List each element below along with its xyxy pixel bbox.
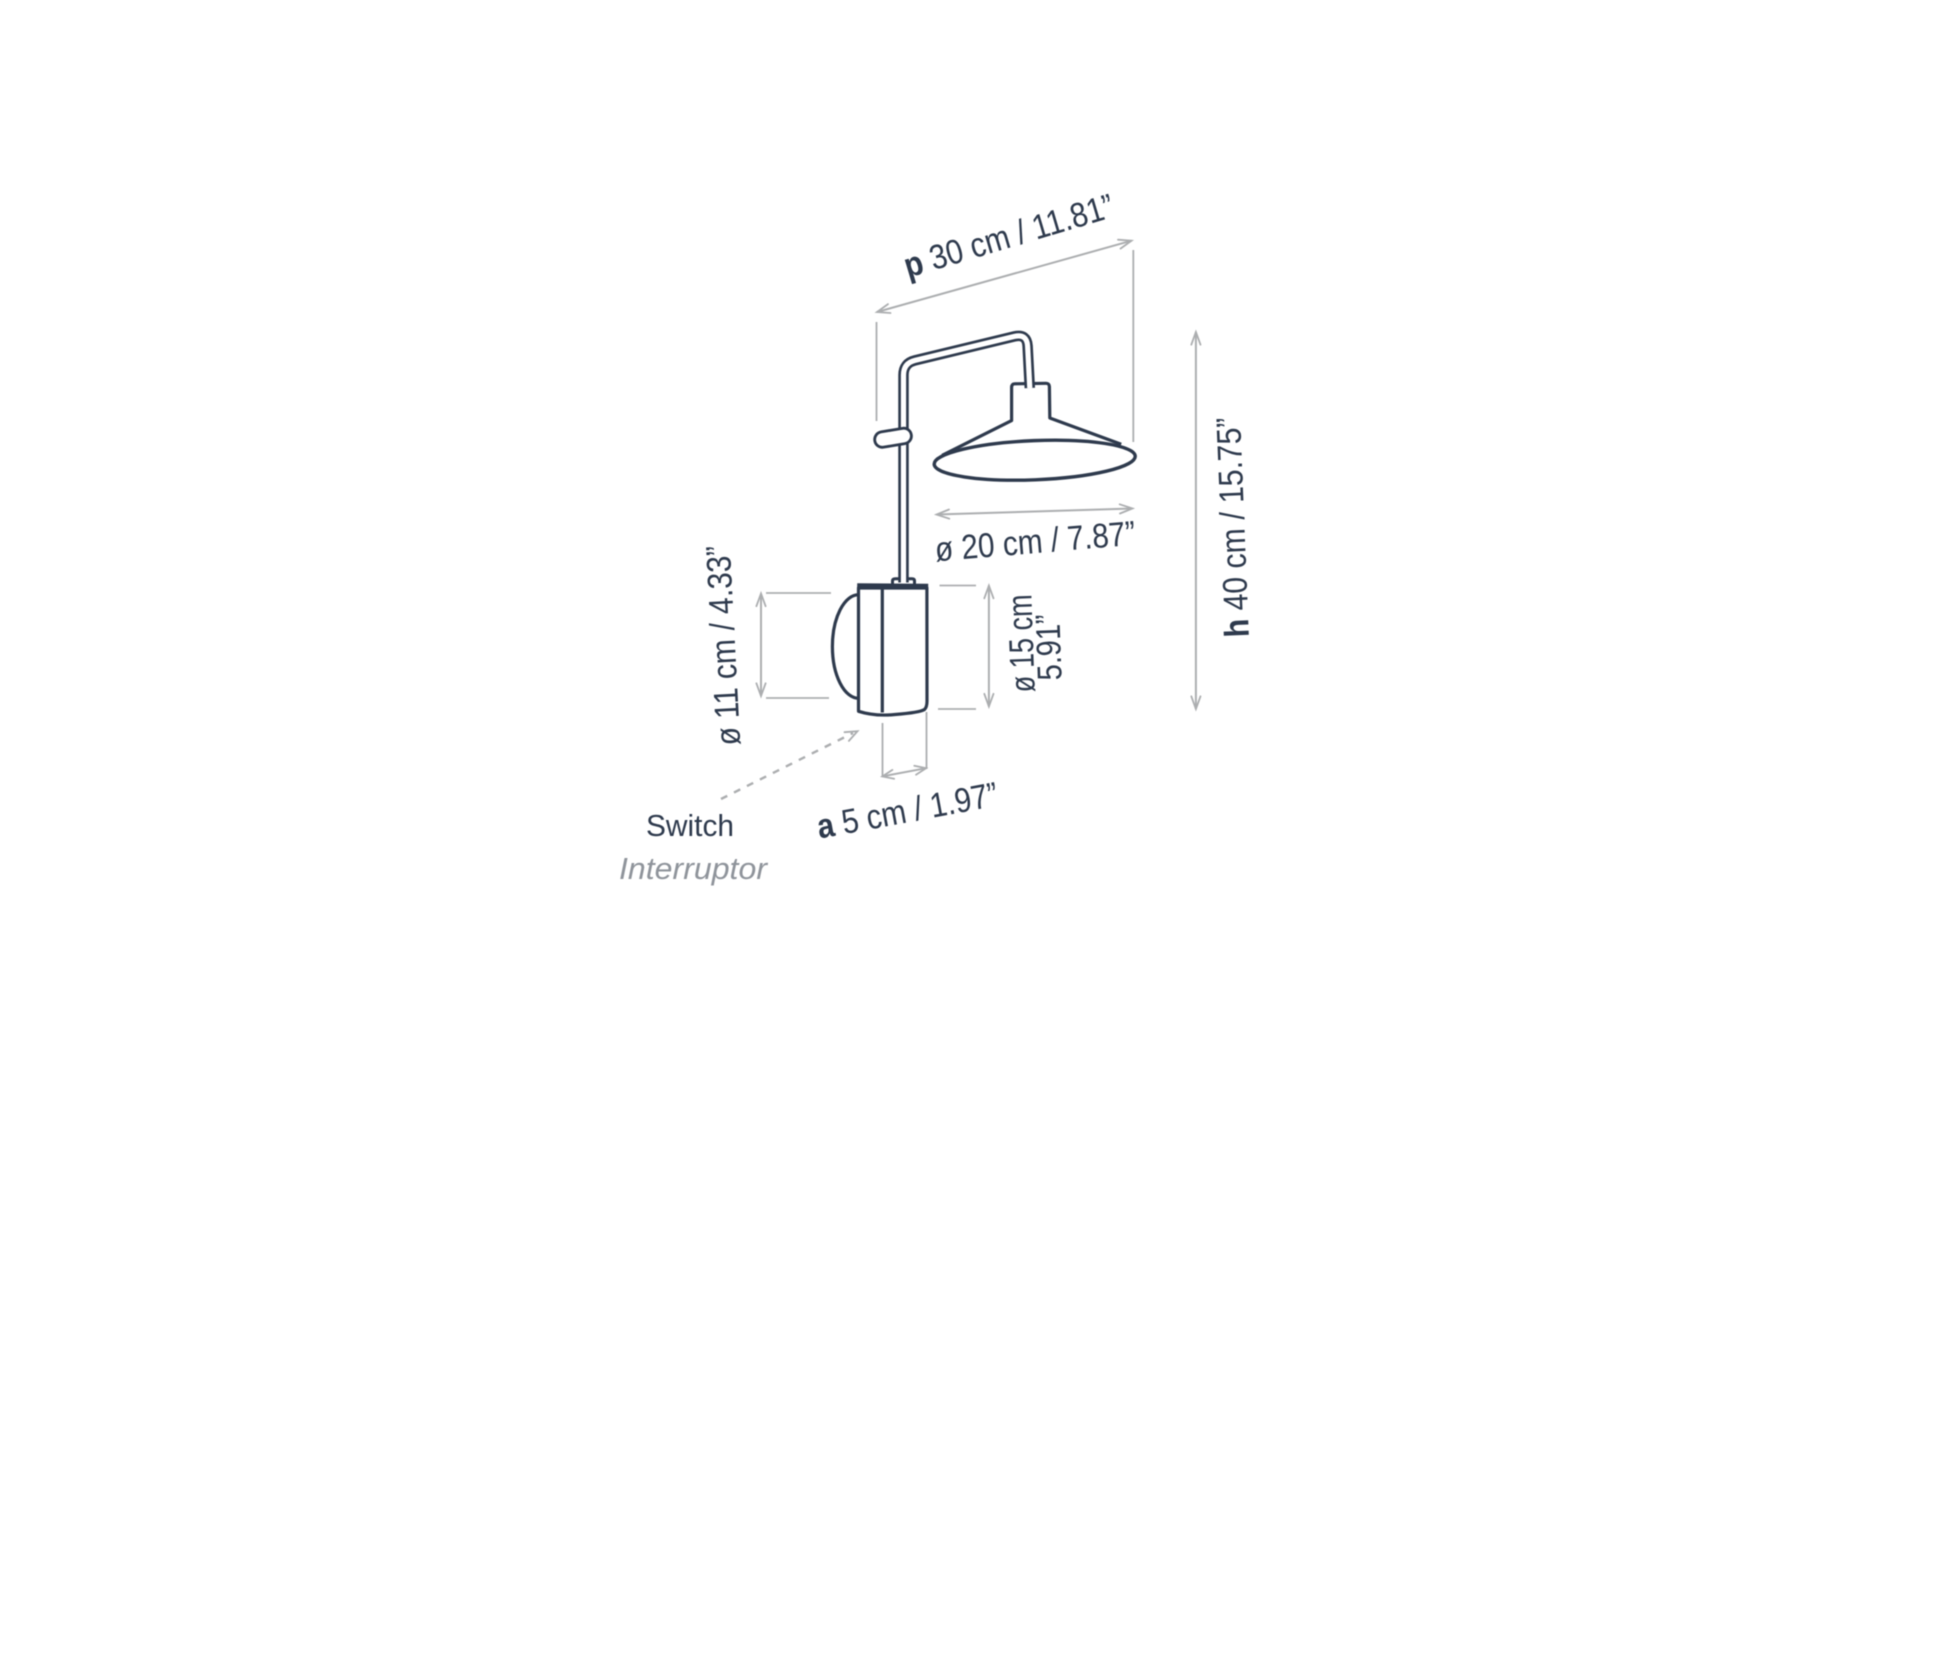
svg-text:Interruptor: Interruptor — [619, 851, 769, 886]
svg-text:Switch: Switch — [646, 808, 734, 843]
svg-text:5.91”: 5.91” — [1029, 614, 1069, 681]
